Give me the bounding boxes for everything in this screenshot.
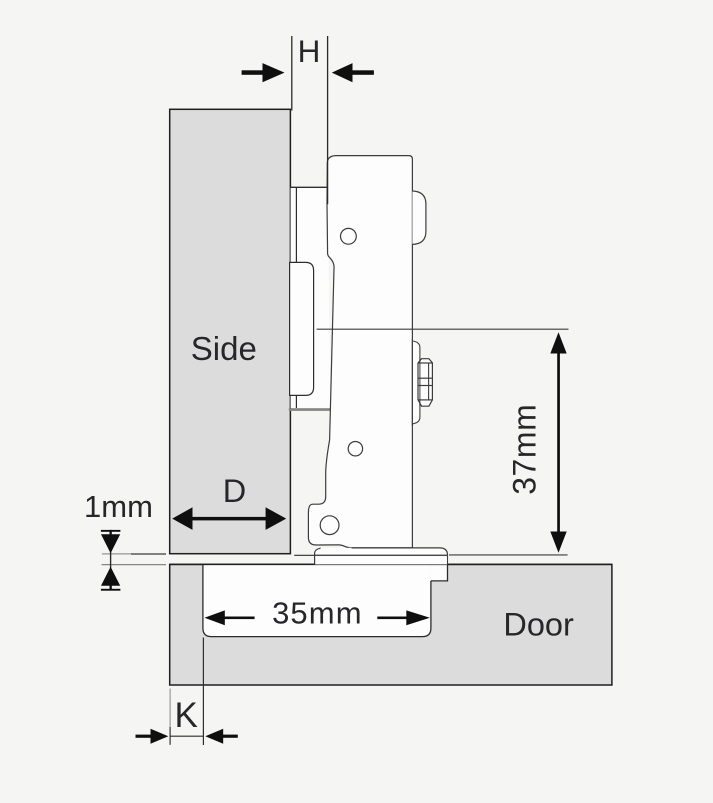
- svg-text:1mm: 1mm: [84, 489, 153, 524]
- svg-text:K: K: [175, 696, 198, 735]
- svg-text:Side: Side: [191, 330, 257, 367]
- svg-text:37mm: 37mm: [506, 404, 542, 495]
- svg-text:Door: Door: [503, 607, 574, 643]
- svg-text:D: D: [223, 473, 246, 509]
- svg-text:35mm: 35mm: [272, 595, 363, 630]
- svg-text:H: H: [298, 33, 321, 69]
